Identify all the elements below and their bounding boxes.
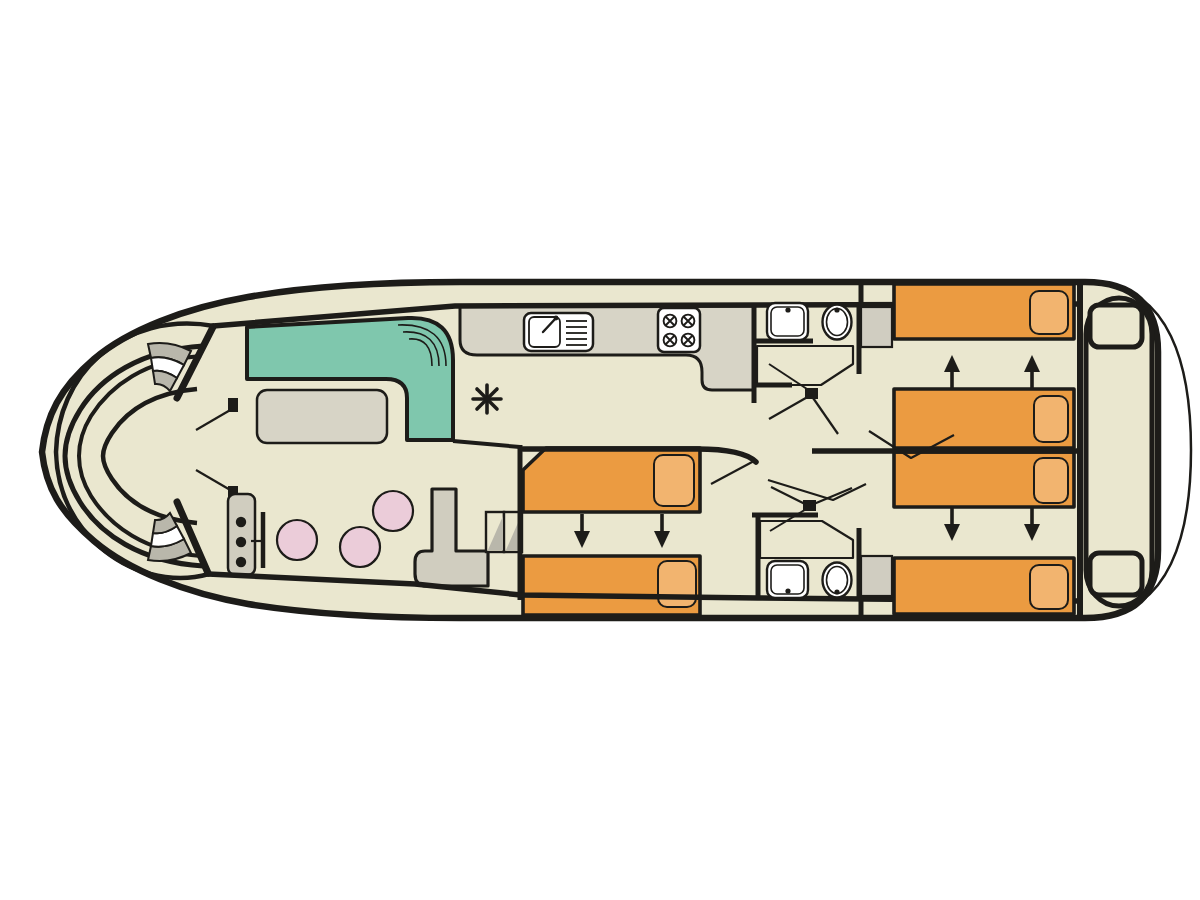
helm-dial-2	[236, 537, 246, 547]
stern-step-starboard	[1090, 553, 1142, 595]
toilet-icon	[823, 305, 852, 340]
pillow	[1030, 565, 1068, 609]
wardrobe	[861, 307, 892, 347]
salon-table	[257, 390, 387, 443]
stern-step-port	[1090, 305, 1142, 347]
heater-icon	[473, 385, 501, 413]
stove-icon	[658, 308, 700, 352]
washbasin-icon	[767, 303, 808, 340]
companionway-steps	[486, 512, 522, 552]
helm-dial-3	[236, 557, 246, 567]
boat-floor-plan	[0, 0, 1200, 900]
toilet-icon	[823, 563, 852, 598]
pillow	[1034, 458, 1068, 503]
stool-2	[340, 527, 380, 567]
pillow	[1034, 396, 1068, 442]
mid-bed-bottom-pillow	[658, 561, 696, 607]
helm-dial-1	[236, 517, 246, 527]
stool-3	[373, 491, 413, 531]
stool-1	[277, 520, 317, 560]
mid-bed-top-pillow	[654, 455, 694, 506]
boat-floorplan-page	[0, 0, 1200, 900]
pillow	[1030, 291, 1068, 334]
sink-icon	[524, 313, 593, 351]
wardrobe	[861, 556, 892, 596]
washbasin-icon	[767, 561, 808, 598]
